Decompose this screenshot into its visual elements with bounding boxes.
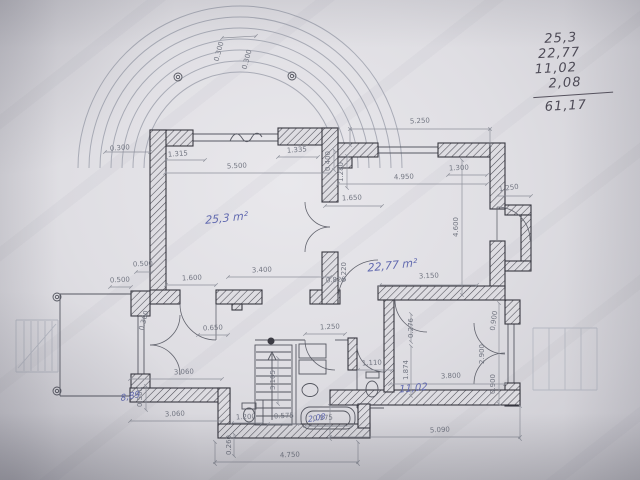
wall-segment — [348, 338, 357, 370]
terrace-columns — [53, 72, 296, 395]
dimension-line — [222, 36, 256, 38]
dimension-label: 0.300 — [110, 143, 131, 152]
wall-segment — [216, 290, 262, 304]
dimension-label: 4.950 — [394, 172, 414, 181]
dimension-label: 1.315 — [168, 149, 189, 158]
stair-newel — [268, 338, 275, 345]
wall-segment — [150, 290, 180, 304]
dimension-label: 0.900 — [489, 374, 497, 394]
wall-segment — [130, 388, 230, 402]
dimension-label: 1.250 — [498, 183, 519, 194]
dimension-label: 5.250 — [410, 116, 430, 125]
shower-cabinet-symbol — [299, 344, 326, 374]
dimension-label: 3.105 — [269, 370, 277, 390]
floor-plan-photo: 0.3001.3151.3355.5005.2504.9501.3001.250… — [0, 0, 640, 480]
dimension-label: 5.500 — [227, 161, 247, 170]
wall-segment — [521, 215, 531, 261]
dimension-label: 1.200 — [236, 412, 256, 421]
dimension-label: 1.650 — [342, 193, 362, 202]
room-area-label: 2,08 — [308, 412, 326, 424]
wall-segment — [490, 143, 505, 209]
exterior-steps — [16, 320, 597, 390]
dimension-label: 0.900 — [489, 310, 500, 331]
dimension-label: 1.280 — [337, 162, 345, 182]
dimension-label: 0.220 — [340, 262, 348, 282]
dimension-label: 0.500 — [110, 275, 130, 284]
dimension-label: 0.575 — [274, 411, 294, 420]
door-swing — [305, 227, 330, 252]
dimension-label: 1.250 — [320, 322, 340, 331]
dimension-label: 1.600 — [182, 273, 202, 282]
dimension-label: 0.300 — [241, 49, 254, 70]
wall-segment — [150, 130, 166, 292]
dimension-label: 3.060 — [165, 409, 185, 418]
wall-segment — [505, 261, 531, 271]
dimension-label: 0.276 — [407, 317, 415, 338]
dimension-label: 4.600 — [452, 217, 460, 237]
wall-segment — [505, 205, 531, 215]
wall-segment — [438, 143, 490, 157]
dimension-label: 0.500 — [133, 259, 153, 268]
wall-segment — [232, 304, 242, 310]
dimension-label: 5.090 — [430, 425, 450, 434]
washbasin-symbol — [302, 384, 318, 397]
dimension-label: 4.750 — [280, 450, 300, 459]
door-swing — [305, 340, 335, 370]
window-break-symbol — [230, 133, 262, 141]
dimension-label: 0.650 — [203, 323, 223, 332]
wall-segment — [338, 143, 378, 157]
door-swing — [150, 315, 180, 345]
dimension-label: 2.900 — [478, 344, 486, 364]
dimension-label: 1.300 — [449, 163, 469, 172]
handwritten-sum-note: 25,3 22,77 11,02 2,08 61,17 — [530, 28, 630, 116]
dimension-label: 3.400 — [252, 265, 272, 274]
dimension-label: 0.400 — [324, 151, 332, 171]
dimension-label: 0.260 — [225, 435, 233, 455]
wall-segment — [384, 300, 394, 392]
wall-segment — [358, 404, 370, 428]
room-area-label: 25,3 m² — [205, 209, 248, 227]
dimension-label: 1.335 — [287, 145, 308, 154]
dimension-label: 3.060 — [174, 367, 194, 376]
wall-segment — [490, 241, 505, 288]
dimension-label: 3.800 — [441, 371, 461, 380]
room-area-label: 22,77 m² — [368, 256, 418, 274]
wall-segment — [505, 300, 520, 324]
wall-segment — [378, 286, 505, 300]
dimension-label: 1.110 — [362, 358, 382, 367]
dimension-label: 1.874 — [402, 359, 410, 380]
door-swing — [180, 304, 216, 340]
dimension-label: 3.150 — [419, 271, 439, 280]
column-symbol — [174, 73, 182, 81]
